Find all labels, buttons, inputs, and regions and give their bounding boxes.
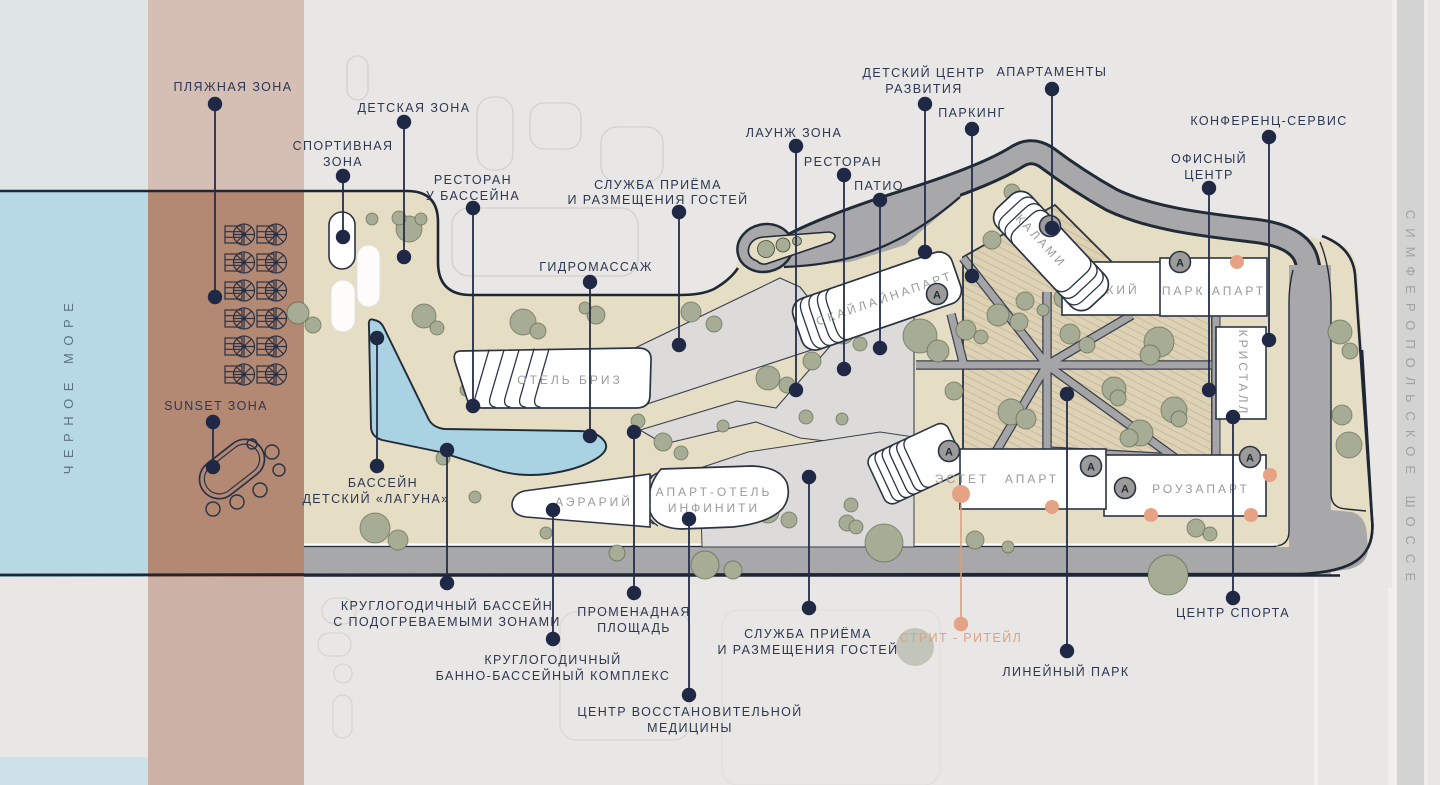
svg-text:АПАРТ-ОТЕЛЬ: АПАРТ-ОТЕЛЬ — [656, 485, 773, 499]
svg-text:ЛИНЕЙНЫЙ ПАРК: ЛИНЕЙНЫЙ ПАРК — [1002, 664, 1129, 679]
svg-text:СПОРТИВНАЯ: СПОРТИВНАЯ — [293, 139, 394, 153]
svg-text:ЦЕНТР СПОРТА: ЦЕНТР СПОРТА — [1176, 606, 1290, 620]
svg-text:ДЕТСКИЙ ЦЕНТР: ДЕТСКИЙ ЦЕНТР — [863, 65, 986, 80]
svg-text:ПРОМЕНАДНАЯ: ПРОМЕНАДНАЯ — [577, 605, 691, 619]
svg-text:КОНФЕРЕНЦ-СЕРВИС: КОНФЕРЕНЦ-СЕРВИС — [1190, 114, 1347, 128]
svg-text:МЕДИЦИНЫ: МЕДИЦИНЫ — [647, 721, 733, 735]
svg-text:ИНФИНИТИ: ИНФИНИТИ — [668, 501, 760, 515]
svg-text:БАССЕЙН: БАССЕЙН — [348, 475, 418, 490]
svg-text:ДЕТСКИЙ «ЛАГУНА»: ДЕТСКИЙ «ЛАГУНА» — [302, 491, 449, 506]
svg-text:ЗОНА: ЗОНА — [323, 155, 363, 169]
svg-text:ЛАУНЖ ЗОНА: ЛАУНЖ ЗОНА — [746, 126, 842, 140]
svg-text:ЦЕНТР ВОССТАНОВИТЕЛЬНОЙ: ЦЕНТР ВОССТАНОВИТЕЛЬНОЙ — [577, 704, 802, 719]
svg-text:И РАЗМЕЩЕНИЯ ГОСТЕЙ: И РАЗМЕЩЕНИЯ ГОСТЕЙ — [718, 642, 899, 657]
svg-text:С ПОДОГРЕВАЕМЫМИ ЗОНАМИ: С ПОДОГРЕВАЕМЫМИ ЗОНАМИ — [333, 615, 561, 629]
svg-text:ДЕТСКАЯ ЗОНА: ДЕТСКАЯ ЗОНА — [358, 101, 471, 115]
svg-text:ПЛЯЖНАЯ ЗОНА: ПЛЯЖНАЯ ЗОНА — [174, 80, 293, 94]
svg-text:ОФИСНЫЙ: ОФИСНЫЙ — [1171, 151, 1247, 166]
svg-text:АПАРТАМЕНТЫ: АПАРТАМЕНТЫ — [997, 65, 1108, 79]
svg-text:ПАРКИНГ: ПАРКИНГ — [938, 106, 1006, 120]
svg-text:РАЗВИТИЯ: РАЗВИТИЯ — [885, 82, 962, 96]
svg-text:БАННО-БАССЕЙНЫЙ КОМПЛЕКС: БАННО-БАССЕЙНЫЙ КОМПЛЕКС — [436, 668, 671, 683]
svg-text:АЭРАРИЙ: АЭРАРИЙ — [555, 494, 633, 509]
svg-text:ЧЕРНОЕ МОРЕ: ЧЕРНОЕ МОРЕ — [61, 296, 76, 475]
svg-text:ОТЕЛЬ БРИЗ: ОТЕЛЬ БРИЗ — [517, 373, 623, 387]
svg-text:ПЛОЩАДЬ: ПЛОЩАДЬ — [597, 621, 671, 635]
svg-text:ПАТИО: ПАТИО — [854, 179, 904, 193]
svg-text:РЕСТОРАН: РЕСТОРАН — [804, 155, 882, 169]
svg-text:СЛУЖБА ПРИЁМА: СЛУЖБА ПРИЁМА — [594, 178, 722, 192]
svg-text:А: А — [1121, 484, 1129, 496]
svg-text:КРУГЛОГОДИЧНЫЙ: КРУГЛОГОДИЧНЫЙ — [484, 652, 621, 667]
svg-text:КРУГЛОГОДИЧНЫЙ БАССЕЙН: КРУГЛОГОДИЧНЫЙ БАССЕЙН — [341, 598, 553, 613]
svg-text:СИМФЕРОПОЛЬСКОЕ ШОССЕ: СИМФЕРОПОЛЬСКОЕ ШОССЕ — [1403, 210, 1418, 590]
svg-text:А: А — [1087, 462, 1095, 474]
svg-text:РЕСТОРАН: РЕСТОРАН — [434, 173, 512, 187]
svg-text:А: А — [1246, 453, 1254, 465]
svg-text:А: А — [945, 447, 953, 459]
svg-text:А: А — [1176, 258, 1184, 270]
svg-text:КРИСТАЛЛ: КРИСТАЛЛ — [1236, 330, 1250, 417]
svg-text:ГИДРОМАССАЖ: ГИДРОМАССАЖ — [539, 260, 653, 274]
svg-text:СЛУЖБА ПРИЁМА: СЛУЖБА ПРИЁМА — [744, 627, 872, 641]
svg-text:АПАРТ: АПАРТ — [1005, 472, 1059, 486]
svg-text:А: А — [933, 290, 941, 302]
svg-text:РОУЗАПАРТ: РОУЗАПАРТ — [1152, 482, 1250, 496]
svg-text:ЭСТЕТ: ЭСТЕТ — [935, 472, 990, 486]
svg-text:ПАРК АПАРТ: ПАРК АПАРТ — [1162, 284, 1266, 298]
svg-text:У БАССЕЙНА: У БАССЕЙНА — [426, 188, 520, 203]
svg-text:И РАЗМЕЩЕНИЯ ГОСТЕЙ: И РАЗМЕЩЕНИЯ ГОСТЕЙ — [568, 192, 749, 207]
svg-text:SUNSET ЗОНА: SUNSET ЗОНА — [164, 399, 268, 413]
svg-text:ЦЕНТР: ЦЕНТР — [1184, 168, 1234, 182]
svg-text:СТРИТ - РИТЕЙЛ: СТРИТ - РИТЕЙЛ — [900, 630, 1022, 645]
